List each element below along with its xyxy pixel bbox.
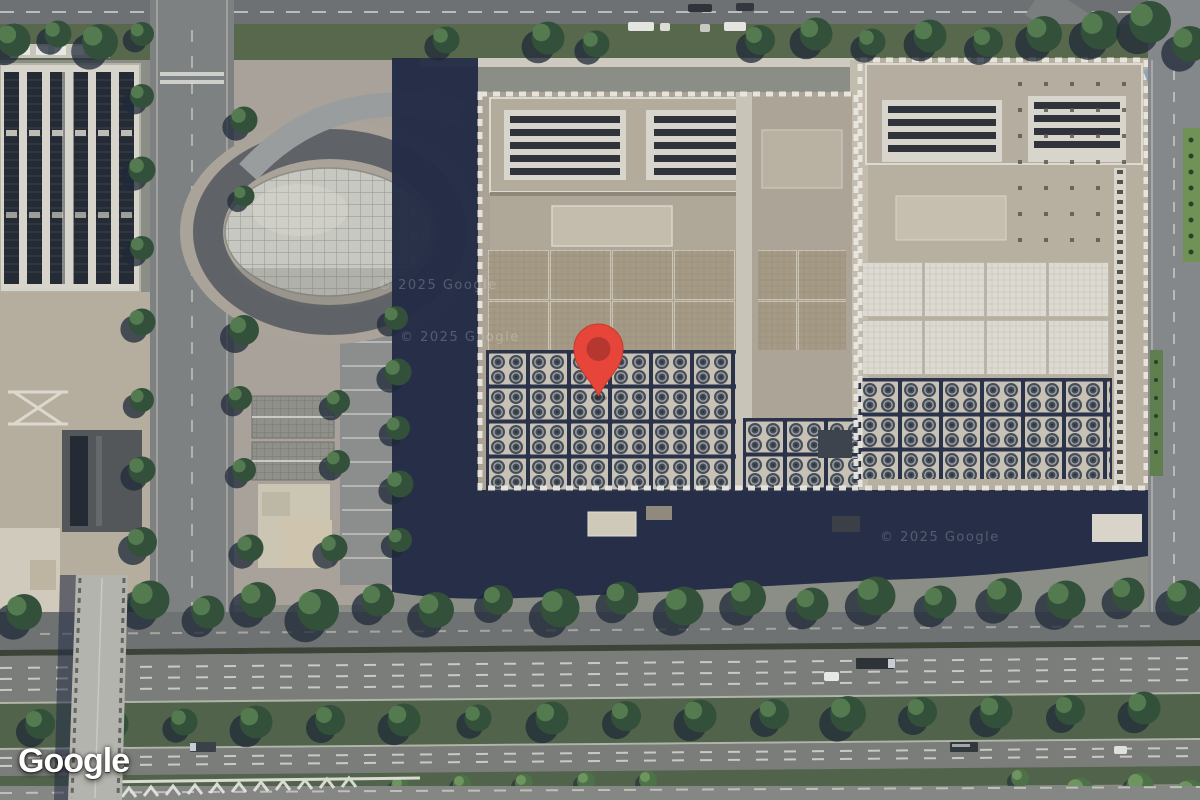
east-perimeter-road xyxy=(1148,0,1200,648)
solar-panel-building xyxy=(0,44,140,292)
google-logo[interactable]: Google xyxy=(18,742,129,781)
highway xyxy=(0,640,1200,800)
east-catwalk xyxy=(1114,168,1126,490)
rooftop-panels-right xyxy=(862,262,1110,378)
satellite-imagery xyxy=(0,0,1200,800)
hvac-units-right xyxy=(858,378,1112,479)
southwest-plaza xyxy=(0,292,150,622)
center-utility-strip xyxy=(736,92,859,492)
map-viewport[interactable]: © 2025 Google © 2025 Google © 2025 Googl… xyxy=(0,0,1200,800)
west-access-road xyxy=(150,0,234,645)
data-center-building xyxy=(478,55,1191,492)
